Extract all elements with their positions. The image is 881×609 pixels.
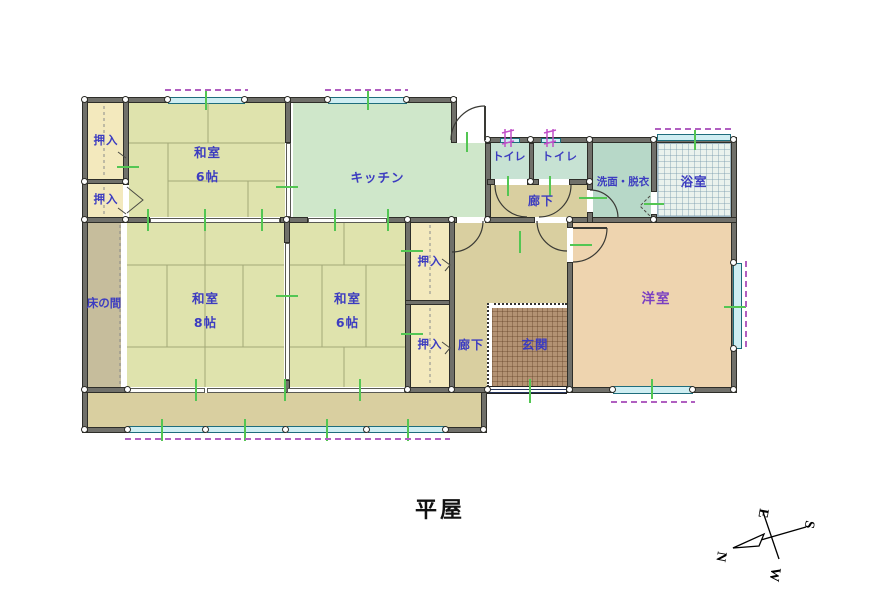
- closet-bifold-door: [127, 187, 143, 213]
- label-oshiire-m1: 押入: [410, 256, 450, 268]
- hall-door-arc: [537, 221, 567, 251]
- bath-folding-door: [640, 196, 650, 216]
- label-oshiire-tl1: 押入: [86, 135, 126, 147]
- label-hallway-mid: 廊下: [449, 339, 493, 351]
- label-tokonoma: 床の間: [81, 298, 127, 310]
- compass-north-arrow: [733, 534, 764, 548]
- label-oshiire-tl2: 押入: [86, 194, 126, 206]
- dashed-guides: [104, 106, 430, 385]
- compass-n: N: [712, 550, 729, 563]
- label-washitsu8-size: 8帖: [173, 317, 238, 330]
- compass-e: E: [754, 507, 770, 519]
- label-hallway-top: 廊下: [519, 195, 563, 207]
- oshiire-tl2-mark: [118, 208, 126, 214]
- oshiire-tl1-mark: [118, 152, 126, 158]
- label-washitsu6-top-name: 和室: [175, 147, 240, 160]
- label-senmen: 洗面・脱衣: [586, 177, 660, 188]
- label-toilet2: トイレ: [535, 151, 585, 162]
- label-washitsu6-top-size: 6帖: [175, 171, 240, 184]
- label-toilet1: トイレ: [487, 151, 531, 162]
- label-washitsu6-mid-name: 和室: [315, 293, 380, 306]
- tatami-lines: [127, 103, 405, 387]
- kitchen-hall-door-arc: [452, 221, 483, 252]
- toilet-vent-marks: [502, 129, 556, 147]
- plan-title: 平屋: [355, 492, 525, 524]
- floor-plan-canvas: E S N W 押入 押入 和室 6帖 キッチン トイレ トイレ 洗面・脱衣 浴…: [0, 0, 881, 609]
- label-washitsu8-name: 和室: [173, 293, 238, 306]
- compass-w: W: [766, 566, 783, 582]
- label-kitchen: キッチン: [330, 172, 425, 185]
- label-yoshitsu: 洋室: [632, 293, 680, 307]
- label-bath: 浴室: [671, 176, 717, 189]
- senmen-door-arc: [590, 190, 618, 218]
- label-washitsu6-mid-size: 6帖: [315, 317, 380, 330]
- label-oshiire-m2: 押入: [410, 339, 450, 351]
- label-genkan: 玄関: [512, 339, 558, 352]
